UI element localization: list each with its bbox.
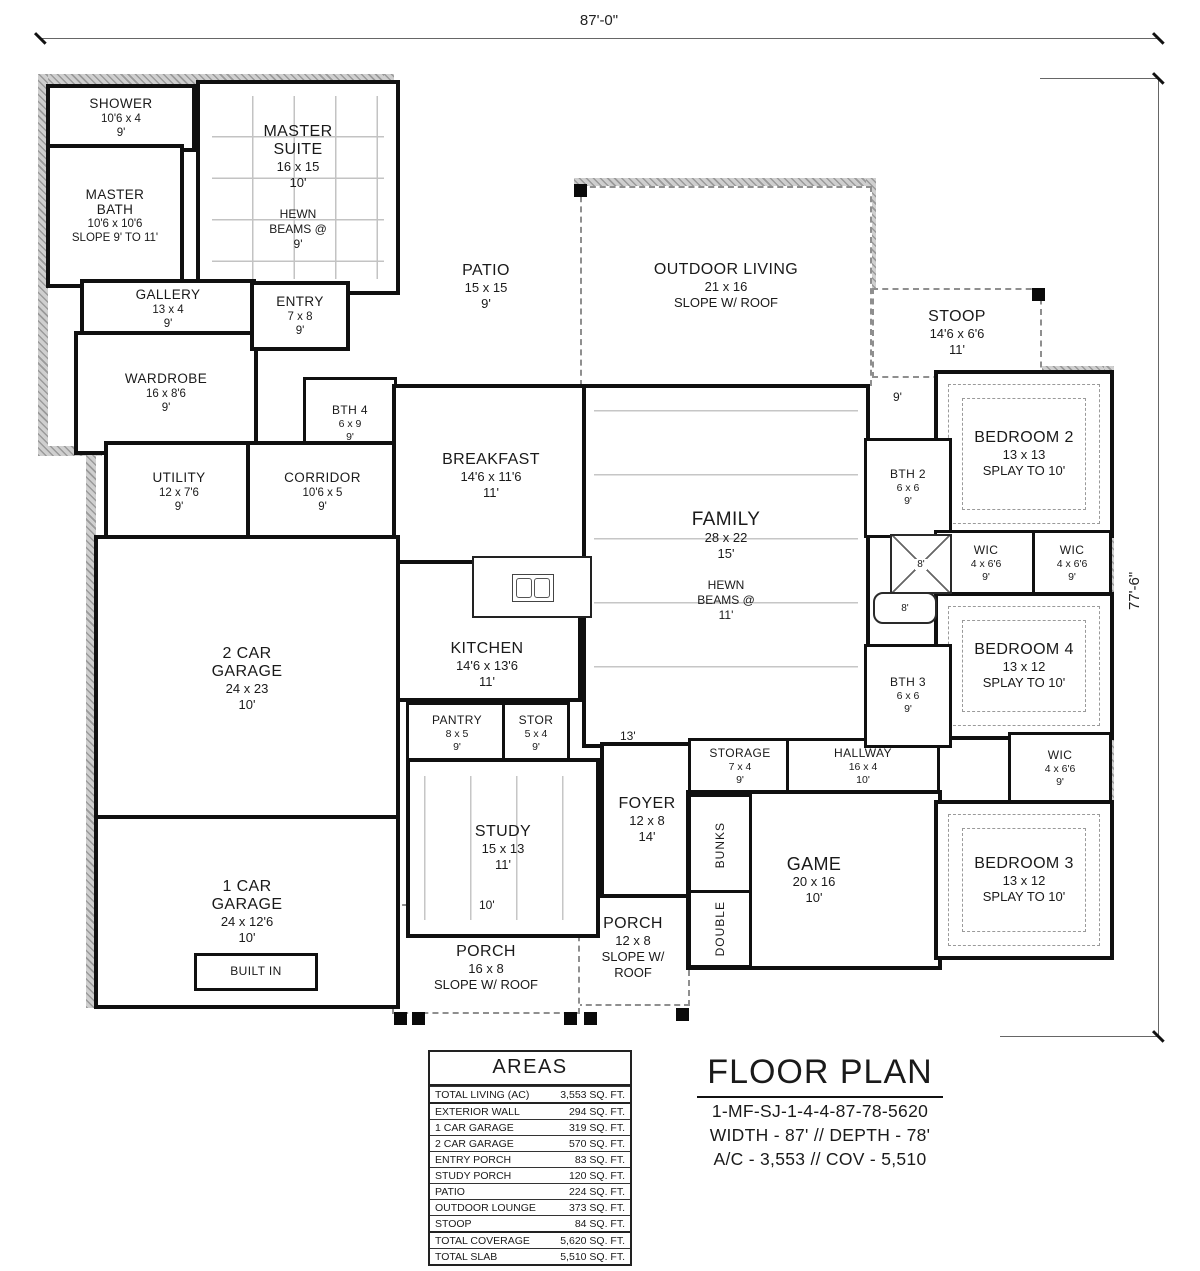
room-name: BTH 4 — [332, 404, 368, 417]
room-name: BTH 2 — [890, 468, 926, 481]
room-size: 4 x 6'6 — [1045, 763, 1076, 776]
room-size: 10'6 x 4 — [101, 112, 141, 126]
table-row: 1 CAR GARAGE 319 SQ. FT. — [430, 1119, 630, 1135]
porch-column — [412, 1012, 425, 1025]
extension-line — [1040, 78, 1158, 79]
room-name: BTH 3 — [890, 676, 926, 689]
table-row: STUDY PORCH 120 SQ. FT. — [430, 1167, 630, 1183]
room-patio: PATIO 15 x 15 9' — [392, 192, 580, 382]
area-label: TOTAL LIVING (AC) — [435, 1089, 529, 1101]
room-ceiling: 14' — [639, 829, 656, 845]
room-name: WIC — [1060, 544, 1085, 557]
double-closet: DOUBLE — [688, 890, 752, 968]
room-shower: SHOWER 10'6 x 4 9' — [46, 84, 196, 152]
room-name: STUDY — [475, 823, 531, 841]
room-ceiling: 10' — [806, 890, 823, 906]
room-size: 12 x 8 — [629, 813, 664, 829]
kitchen-sink — [512, 574, 554, 602]
table-row: STOOP 84 SQ. FT. — [430, 1215, 630, 1231]
room-ceiling: 9' — [532, 741, 540, 754]
room-size: 20 x 16 — [793, 874, 836, 890]
room-ceiling: 11' — [483, 485, 499, 501]
room-size: 4 x 6'6 — [1057, 558, 1088, 571]
plan-dimensions: WIDTH - 87' // DEPTH - 78' — [652, 1125, 988, 1146]
area-label: 1 CAR GARAGE — [435, 1122, 514, 1134]
room-name: STOOP — [928, 308, 986, 326]
area-value: 83 SQ. FT. — [575, 1154, 625, 1166]
room-size: 24 x 23 — [226, 681, 269, 697]
room-size: 13 x 12 — [1003, 873, 1046, 889]
room-name: WIC — [1048, 749, 1073, 762]
double-label: DOUBLE — [713, 901, 727, 956]
room-corridor: CORRIDOR 10'6 x 5 9' — [246, 441, 399, 543]
area-label: ENTRY PORCH — [435, 1154, 511, 1166]
room-size: 6 x 6 — [897, 690, 920, 703]
area-value: 319 SQ. FT. — [569, 1122, 625, 1134]
room-size: 10'6 x 10'6 — [88, 217, 143, 231]
room-bth-3: BTH 3 6 x 6 9' — [864, 644, 952, 748]
top-dimension-line — [40, 38, 1158, 39]
room-ceiling: SLOPE W/ ROOF — [674, 295, 778, 311]
room-name: WARDROBE — [125, 371, 207, 386]
room-outdoor-living: OUTDOOR LIVING 21 x 16 SLOPE W/ ROOF — [580, 186, 872, 386]
room-name: BEDROOM 4 — [974, 641, 1074, 659]
room-size: 15 x 13 — [482, 841, 525, 857]
porch-column — [584, 1012, 597, 1025]
area-value: 373 SQ. FT. — [569, 1202, 625, 1214]
room-ceiling: 11' — [479, 674, 495, 690]
room-breakfast: BREAKFAST 14'6 x 11'6 11' — [392, 384, 590, 568]
room-name: FAMILY — [692, 509, 761, 530]
dim-label-9ft: 9' — [893, 390, 902, 404]
room-size: 12 x 8 — [615, 933, 650, 949]
area-label: EXTERIOR WALL — [435, 1106, 520, 1118]
room-study: STUDY 15 x 13 11' — [406, 758, 600, 938]
room-ceiling: SLOPE 9' TO 11' — [72, 231, 158, 245]
porch-column — [574, 184, 587, 197]
room-size: 15 x 15 — [465, 280, 508, 296]
dim-label-13ft: 13' — [620, 729, 636, 743]
room-name: HALLWAY — [834, 747, 892, 760]
built-in-cabinet: BUILT IN — [194, 953, 318, 991]
room-name: CORRIDOR — [284, 470, 361, 485]
room-ceiling: 9' — [1056, 776, 1064, 789]
table-row: ENTRY PORCH 83 SQ. FT. — [430, 1151, 630, 1167]
extension-line — [1000, 1036, 1158, 1037]
area-label: PATIO — [435, 1186, 465, 1198]
room-ceiling: 10' — [290, 175, 307, 191]
room-storage: STORAGE 7 x 4 9' — [688, 738, 792, 796]
room-ceiling: 9' — [481, 296, 491, 312]
area-label: STOOP — [435, 1218, 472, 1230]
room-ceiling: 9' — [318, 500, 327, 514]
room-name: 1 CAR GARAGE — [202, 878, 292, 914]
room-ceiling: 10' — [856, 774, 870, 787]
porch-column — [394, 1012, 407, 1025]
right-dimension-line — [1158, 78, 1159, 1036]
room-size: 6 x 9 — [339, 418, 362, 431]
areas-table-title: AREAS — [430, 1052, 630, 1086]
room-size: 7 x 8 — [288, 310, 313, 324]
bunks-label: BUNKS — [713, 822, 727, 868]
room-gallery: GALLERY 13 x 4 9' — [80, 279, 256, 339]
room-ceiling: 9' — [117, 126, 126, 140]
room-size: 14'6 x 13'6 — [456, 658, 518, 674]
room-ceiling: SPLAY TO 10' — [983, 675, 1065, 691]
room-stoop: STOOP 14'6 x 6'6 11' — [872, 288, 1042, 378]
bunks-closet: BUNKS — [688, 794, 752, 896]
porch-column — [564, 1012, 577, 1025]
room-name: UTILITY — [152, 470, 205, 485]
area-value: 294 SQ. FT. — [569, 1106, 625, 1118]
room-size: 24 x 12'6 — [221, 914, 273, 930]
room-size: 16 x 8'6 — [146, 387, 186, 401]
room-ceiling: 9' — [296, 324, 305, 338]
porch-column — [1032, 288, 1045, 301]
room-name: BEDROOM 3 — [974, 855, 1074, 873]
room-ceiling: 9' — [453, 741, 461, 754]
room-size: 16 x 4 — [849, 761, 878, 774]
table-row: TOTAL LIVING (AC) 3,553 SQ. FT. — [430, 1086, 630, 1102]
room-ceiling: 9' — [904, 495, 912, 508]
room-name: BEDROOM 2 — [974, 429, 1074, 447]
room-size: 13 x 4 — [152, 303, 183, 317]
room-size: 16 x 8 — [468, 961, 503, 977]
porch-column — [676, 1008, 689, 1021]
room-bedroom-3: BEDROOM 3 13 x 12 SPLAY TO 10' — [934, 800, 1114, 960]
plan-areas: A/C - 3,553 // COV - 5,510 — [652, 1149, 988, 1170]
shower-stall-size: 8' — [915, 559, 926, 570]
room-wardrobe: WARDROBE 16 x 8'6 9' — [74, 331, 258, 455]
table-row: PATIO 224 SQ. FT. — [430, 1183, 630, 1199]
area-value: 84 SQ. FT. — [575, 1218, 625, 1230]
room-size: 13 x 12 — [1003, 659, 1046, 675]
built-in-label: BUILT IN — [230, 965, 281, 978]
room-name: ENTRY — [276, 294, 324, 309]
room-name: WIC — [974, 544, 999, 557]
room-size: 21 x 16 — [705, 279, 748, 295]
room-size: 4 x 6'6 — [971, 558, 1002, 571]
area-value: 120 SQ. FT. — [569, 1170, 625, 1182]
room-name: OUTDOOR LIVING — [654, 261, 798, 279]
room-ceiling: 9' — [904, 703, 912, 716]
table-row: TOTAL COVERAGE 5,620 SQ. FT. — [430, 1231, 630, 1248]
areas-table: AREAS TOTAL LIVING (AC) 3,553 SQ. FT. EX… — [428, 1050, 632, 1266]
room-ceiling: 9' — [982, 571, 990, 584]
room-name: MASTER SUITE — [253, 123, 343, 159]
room-ceiling: SPLAY TO 10' — [983, 463, 1065, 479]
room-name: BREAKFAST — [442, 451, 540, 469]
room-wic-3: WIC 4 x 6'6 9' — [1008, 732, 1112, 806]
room-size: 8 x 5 — [446, 728, 469, 741]
room-size: 14'6 x 6'6 — [930, 326, 985, 342]
room-size: 16 x 15 — [277, 159, 320, 175]
room-size: 5 x 4 — [525, 728, 548, 741]
room-name: 2 CAR GARAGE — [202, 645, 292, 681]
room-foyer: FOYER 12 x 8 14' — [600, 742, 694, 898]
room-ceiling: SPLAY TO 10' — [983, 889, 1065, 905]
room-stor: STOR 5 x 4 9' — [502, 702, 570, 766]
room-bedroom-4: BEDROOM 4 13 x 12 SPLAY TO 10' — [934, 592, 1114, 740]
room-ceiling: 11' — [495, 857, 511, 873]
table-row: EXTERIOR WALL 294 SQ. FT. — [430, 1102, 630, 1119]
room-bth-2: BTH 2 6 x 6 9' — [864, 438, 952, 538]
sheet-title: FLOOR PLAN — [697, 1053, 942, 1098]
room-name: STOR — [519, 714, 554, 727]
room-bedroom-2: BEDROOM 2 13 x 13 SPLAY TO 10' — [934, 370, 1114, 538]
room-entry: ENTRY 7 x 8 9' — [250, 281, 350, 351]
title-block: FLOOR PLAN 1-MF-SJ-1-4-4-87-78-5620 WIDT… — [652, 1053, 988, 1170]
kitchen-island — [472, 556, 592, 618]
bathtub: 8' — [873, 592, 937, 624]
room-ceiling: 9' — [175, 500, 184, 514]
room-ceiling: 9' — [164, 317, 173, 331]
room-name: STORAGE — [709, 747, 770, 760]
room-size: 6 x 6 — [897, 482, 920, 495]
hewn-beams-note: HEWN BEAMS @ 11' — [694, 578, 758, 623]
room-name: PANTRY — [432, 714, 482, 727]
area-label: TOTAL COVERAGE — [435, 1235, 530, 1247]
room-size: 28 x 22 — [705, 530, 748, 546]
room-name: GAME — [787, 854, 842, 874]
room-ceiling: 15' — [718, 546, 735, 562]
room-name: GALLERY — [136, 287, 201, 302]
room-ceiling: 9' — [162, 401, 171, 415]
room-size: 14'6 x 11'6 — [460, 469, 521, 485]
hewn-beams-note: HEWN BEAMS @ 9' — [266, 207, 330, 252]
room-name: SHOWER — [89, 96, 152, 111]
room-ceiling: SLOPE W/ ROOF — [593, 949, 673, 981]
room-name: FOYER — [618, 795, 675, 813]
area-value: 224 SQ. FT. — [569, 1186, 625, 1198]
room-pantry: PANTRY 8 x 5 9' — [406, 702, 508, 766]
room-ceiling: 9' — [1068, 571, 1076, 584]
area-value: 5,510 SQ. FT. — [560, 1251, 625, 1263]
room-master-suite: MASTER SUITE 16 x 15 10' HEWN BEAMS @ 9' — [196, 80, 400, 295]
room-size: 10'6 x 5 — [303, 486, 343, 500]
table-row: TOTAL SLAB 5,510 SQ. FT. — [430, 1248, 630, 1264]
area-label: STUDY PORCH — [435, 1170, 511, 1182]
room-wic-2: WIC 4 x 6'6 9' — [1032, 530, 1112, 598]
room-ceiling: 9' — [736, 774, 744, 787]
room-ceiling: SLOPE W/ ROOF — [434, 977, 538, 993]
room-name: PORCH — [603, 915, 663, 933]
room-ceiling: 10' — [239, 930, 256, 946]
room-ceiling: 10' — [239, 697, 256, 713]
floor-plan-sheet: PATIO 15 x 15 9' OUTDOOR LIVING 21 x 16 … — [0, 0, 1200, 1271]
dim-label-10ft: 10' — [476, 898, 498, 912]
room-ceiling: 11' — [949, 342, 965, 358]
width-dimension: 87'-0" — [40, 12, 1158, 29]
bathtub-size: 8' — [899, 603, 910, 614]
table-row: 2 CAR GARAGE 570 SQ. FT. — [430, 1135, 630, 1151]
room-size: 13 x 13 — [1003, 447, 1046, 463]
area-value: 570 SQ. FT. — [569, 1138, 625, 1150]
shower-stall: 8' — [890, 534, 952, 594]
room-name: PATIO — [462, 262, 510, 280]
room-master-bath: MASTER BATH 10'6 x 10'6 SLOPE 9' TO 11' — [46, 144, 184, 288]
area-value: 3,553 SQ. FT. — [560, 1089, 625, 1101]
room-name: MASTER BATH — [75, 187, 155, 217]
room-size: 12 x 7'6 — [159, 486, 199, 500]
plan-number: 1-MF-SJ-1-4-4-87-78-5620 — [652, 1101, 988, 1122]
area-value: 5,620 SQ. FT. — [560, 1235, 625, 1247]
table-row: OUTDOOR LOUNGE 373 SQ. FT. — [430, 1199, 630, 1215]
area-label: OUTDOOR LOUNGE — [435, 1202, 536, 1214]
room-family: FAMILY 28 x 22 15' HEWN BEAMS @ 11' — [582, 384, 870, 748]
area-label: 2 CAR GARAGE — [435, 1138, 514, 1150]
room-size: 7 x 4 — [729, 761, 752, 774]
depth-dimension: 77'-6" — [1126, 500, 1143, 610]
room-utility: UTILITY 12 x 7'6 9' — [104, 441, 254, 543]
room-name: KITCHEN — [450, 640, 523, 658]
area-label: TOTAL SLAB — [435, 1251, 497, 1263]
room-2-car-garage: 2 CAR GARAGE 24 x 23 10' — [94, 535, 400, 823]
